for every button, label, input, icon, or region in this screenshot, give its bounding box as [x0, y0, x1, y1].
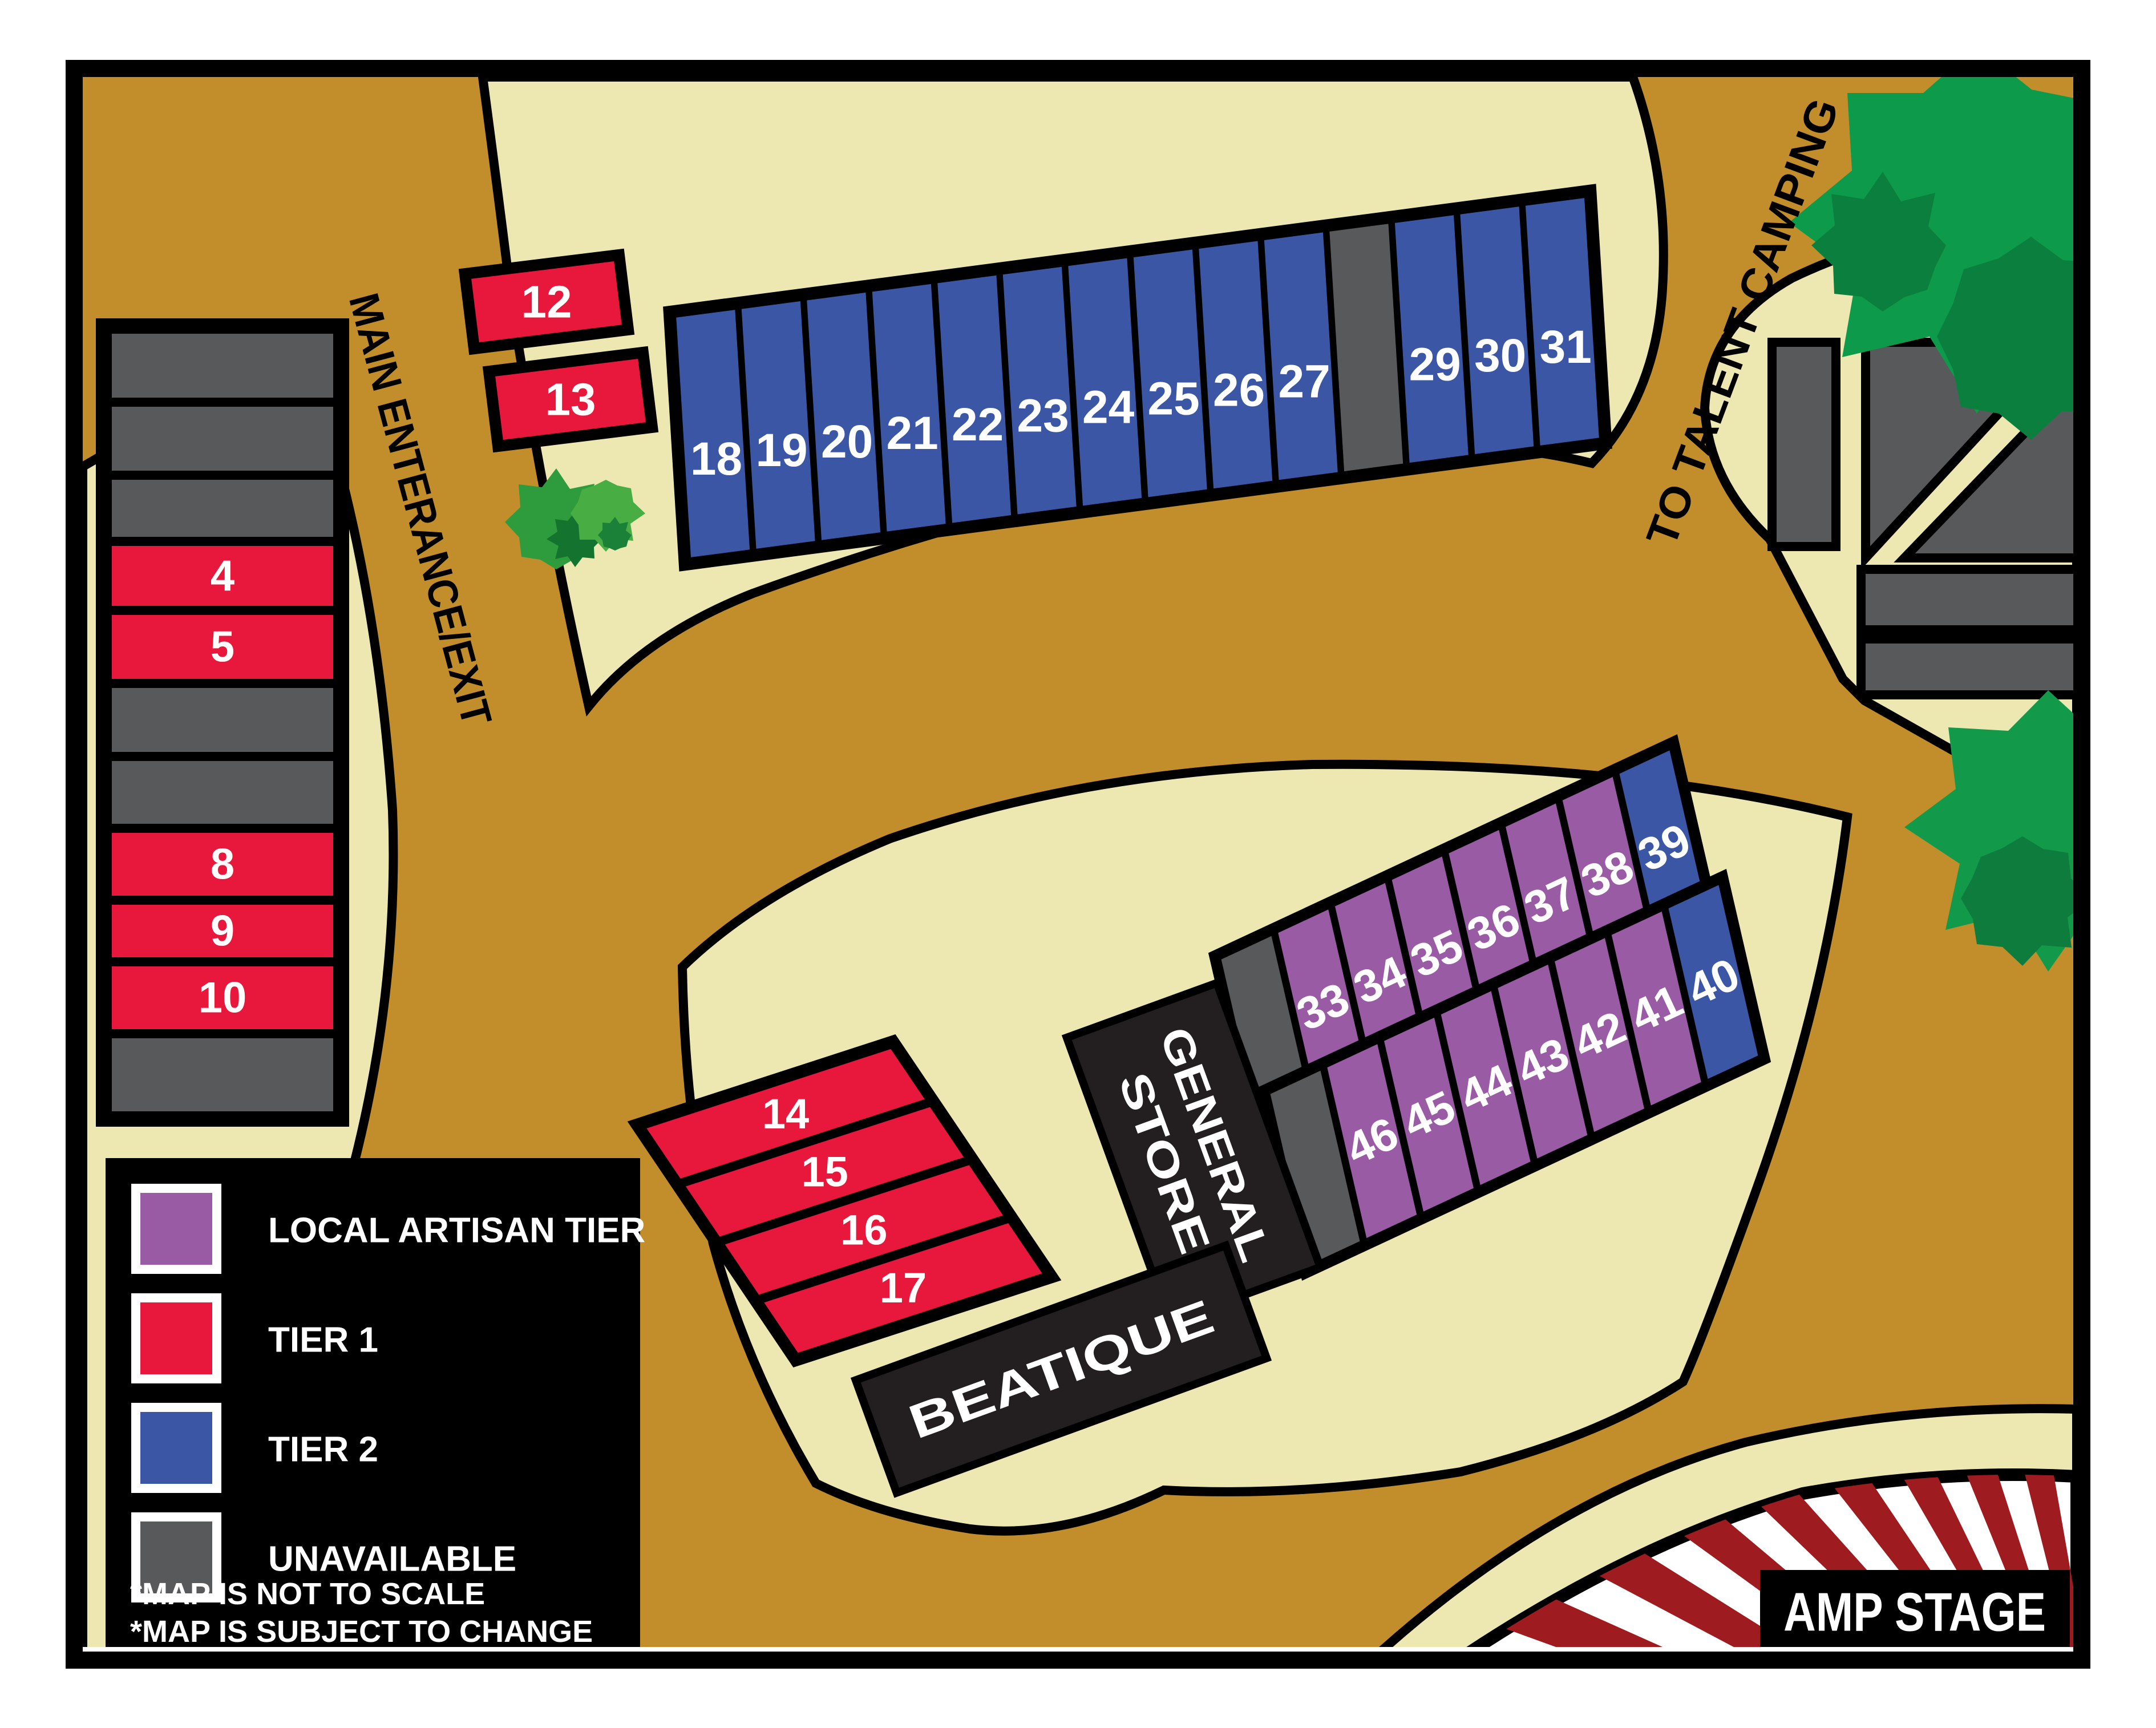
left-column-slot-2	[112, 480, 333, 537]
booth-19-number: 19	[755, 424, 807, 476]
left-column-slot-0	[112, 334, 333, 398]
booth-4-number: 4	[211, 552, 234, 600]
booth-29-number: 29	[1409, 338, 1461, 390]
booth-17-number: 17	[880, 1264, 927, 1312]
left-column-slot-5	[112, 688, 333, 752]
booth-21-number: 21	[886, 407, 938, 459]
legend-label-tier2: TIER 2	[268, 1430, 378, 1470]
booth-14-number: 14	[762, 1090, 809, 1138]
left-column-slot-1	[112, 407, 333, 471]
legend-note-2: *MAP IS SUBJECT TO CHANGE	[130, 1614, 593, 1649]
legend: LOCAL ARTISAN TIERTIER 1TIER 2UNAVAILABL…	[106, 1158, 645, 1657]
booth-13-number: 13	[545, 374, 596, 425]
legend-swatch-artisan	[140, 1193, 212, 1265]
legend-note-1: *MAP IS NOT TO SCALE	[130, 1577, 485, 1611]
booth-30-number: 30	[1474, 330, 1526, 382]
booth-26-number: 26	[1213, 365, 1265, 416]
booth-8-number: 8	[211, 840, 234, 889]
booth-25-number: 25	[1148, 373, 1200, 425]
booth-15-number: 15	[802, 1148, 848, 1196]
legend-label-artisan: LOCAL ARTISAN TIER	[268, 1211, 645, 1251]
amp-stage-sign: AMP STAGE	[1760, 1570, 2070, 1650]
vendor-map-page: 4589101213181920212223242526272930311415…	[0, 0, 2156, 1728]
booth-27-number: 27	[1279, 355, 1330, 407]
legend-swatch-tier2	[140, 1412, 212, 1484]
amp-stage-label: AMP STAGE	[1783, 1582, 2046, 1643]
left-column-slot-10	[112, 1038, 333, 1111]
left-column-slot-6	[112, 761, 333, 824]
structure-bar-1	[1861, 569, 2085, 630]
booth-12-number: 12	[521, 277, 572, 327]
booth-16-number: 16	[840, 1206, 887, 1253]
booth-18-number: 18	[690, 433, 742, 485]
booth-22-number: 22	[952, 399, 1004, 451]
structure-bar-2	[1861, 639, 2078, 695]
booth-31-number: 31	[1540, 321, 1592, 373]
legend-label-tier1: TIER 1	[268, 1321, 378, 1360]
vendor-map: 4589101213181920212223242526272930311415…	[0, 0, 2156, 1728]
structure-tall	[1772, 342, 1836, 547]
booth-5-number: 5	[211, 623, 234, 671]
legend-swatch-tier1	[140, 1302, 212, 1374]
booth-9-number: 9	[211, 907, 234, 956]
booth-23-number: 23	[1017, 390, 1069, 442]
booth-24-number: 24	[1082, 382, 1135, 434]
legend-label-unavailable: UNAVAILABLE	[268, 1540, 516, 1579]
left-column: 458910	[96, 318, 349, 1127]
booth-10-number: 10	[199, 974, 247, 1022]
booth-20-number: 20	[821, 416, 873, 468]
